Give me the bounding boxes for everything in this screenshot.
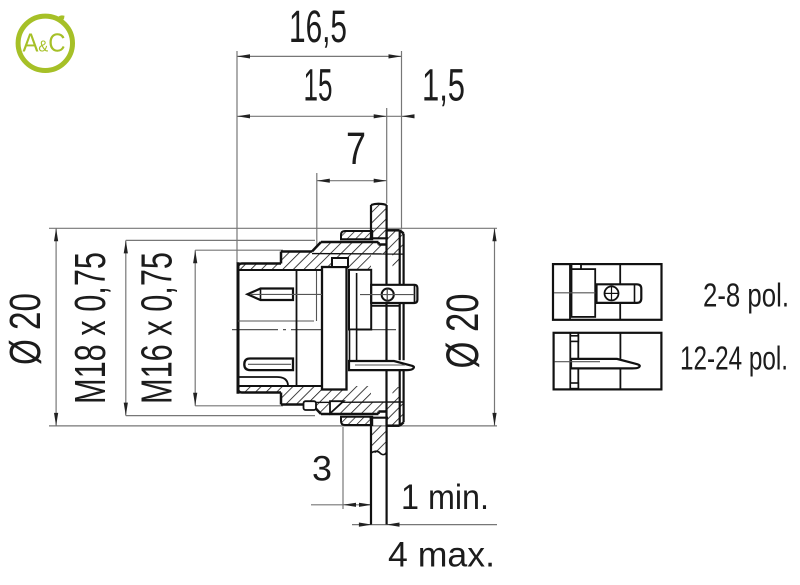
- svg-text:Ø 20: Ø 20: [1, 293, 50, 365]
- svg-text:3: 3: [312, 450, 332, 489]
- svg-text:M18 x 0,75: M18 x 0,75: [66, 252, 115, 404]
- svg-text:16,5: 16,5: [289, 1, 347, 52]
- svg-text:15: 15: [304, 60, 333, 111]
- svg-text:Ø 20: Ø 20: [437, 294, 488, 369]
- svg-text:4 max.: 4 max.: [388, 536, 495, 575]
- svg-text:7: 7: [346, 123, 366, 174]
- svg-text:1 min.: 1 min.: [401, 478, 489, 517]
- svg-text:2-8 pol.: 2-8 pol.: [703, 277, 789, 314]
- svg-text:M16 x 0,75: M16 x 0,75: [133, 252, 182, 404]
- svg-text:1,5: 1,5: [422, 60, 465, 111]
- svg-text:12-24 pol.: 12-24 pol.: [680, 340, 788, 377]
